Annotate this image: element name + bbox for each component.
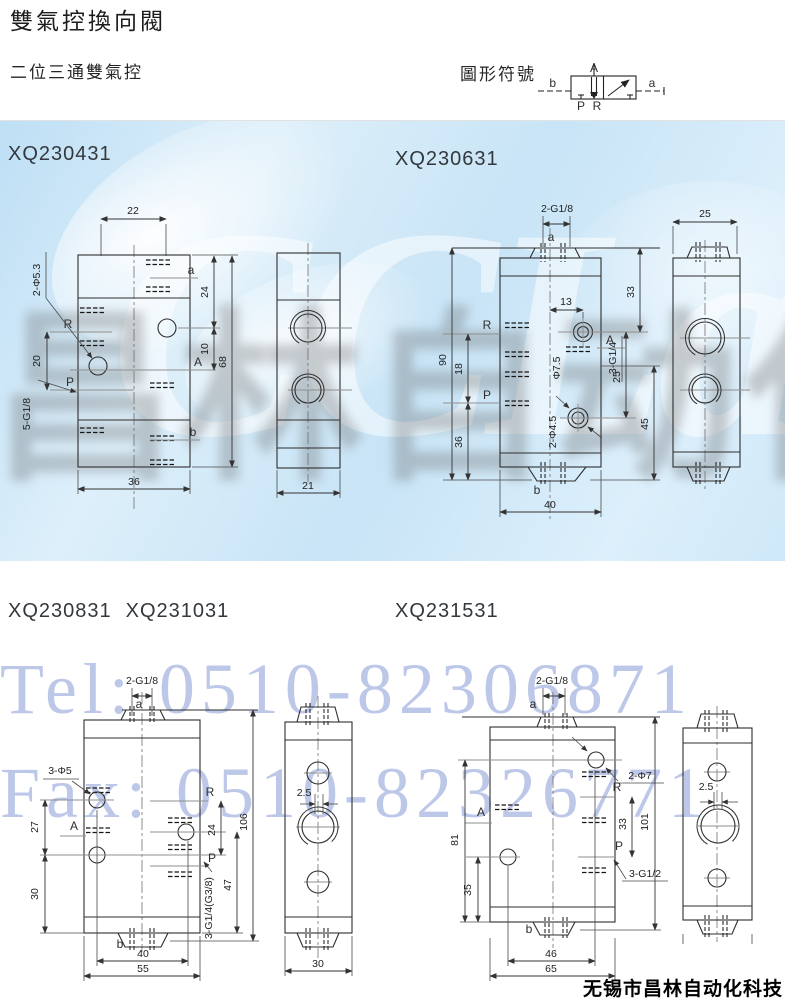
dim-13: 13 [560,296,572,308]
note-port-thread: 5-G1/8 [21,398,33,430]
port-P-label: P [208,851,216,865]
port-R-label: R [206,785,215,799]
symbol-port-b: b [549,76,556,90]
footer-company-name: 无锡市昌林自动化科技 [583,974,783,1000]
note-mount-holes: 3-Φ5 [48,765,72,777]
xq231531-front-drawing: 2-G1/8 a 2-Φ7 R A 81 35 P [450,670,670,995]
dim-width-bottom: 36 [128,476,140,488]
dim-width-top: 22 [127,205,139,217]
dim-81: 81 [449,834,461,846]
dim-45: 45 [639,418,651,430]
mount-hole [158,319,176,337]
section-subtitle: 二位三通雙氣控 [10,58,143,83]
dim-depth: 21 [302,480,314,492]
dim-106: 106 [238,813,250,831]
symbol-port-a: a [649,76,656,90]
model-label-xq230831: XQ230831 [8,600,112,622]
model-label-xq230831-xq231031: XQ230831XQ231031 [8,600,243,623]
dim-24: 24 [206,824,218,836]
xq230831-side-drawing: 2.5 30 [272,688,365,990]
dim-101: 101 [639,813,651,831]
dim-36: 36 [453,436,465,448]
dim-width-bottom: 40 [544,499,556,511]
page-title: 雙氣控換向閥 [10,2,166,36]
note-mount-holes: 2-Φ5.3 [31,264,43,296]
note-top-ports: 2-G1/8 [536,675,568,687]
dim-24: 24 [199,286,211,298]
port-R-label: R [613,780,622,794]
dim-33: 33 [617,818,629,830]
symbol-section-label: 圖形符號 [460,60,536,85]
dim-55: 55 [137,963,149,975]
port-A-label: A [194,355,202,369]
dim-30: 30 [29,888,41,900]
port-a-label: a [188,263,195,277]
dim-25: 25 [611,371,623,383]
note-thread: 3-G1/4 [607,342,619,374]
dim-depth: 30 [312,958,324,970]
note-cbore: Φ7.5 [551,356,563,379]
port-a-label: a [548,230,555,244]
port-P-label: P [615,839,623,853]
port-A-label: A [477,805,485,819]
catalog-page: 雙氣控換向閥 二位三通雙氣控 圖形符號 b A a P R CCLair 昌林自 [0,0,785,1000]
dim-20: 20 [31,355,43,367]
dim-depth: 25 [699,208,711,220]
port-b-label: b [526,922,533,936]
xq230431-front-drawing: 22 a R A P b 2-Φ5.3 20 5-G1/8 24 10 [20,190,250,515]
dim-68: 68 [217,356,229,368]
dim-46: 46 [545,948,557,960]
model-label-xq230631: XQ230631 [395,148,499,171]
xq230631-side-drawing: 25 [660,200,765,495]
dim-27: 27 [29,821,41,833]
dim-offset: 2.5 [699,781,714,793]
port-R-label: R [483,318,492,332]
model-label-xq230431: XQ230431 [8,143,112,166]
note-top-ports: 2-G1/8 [541,203,573,215]
symbol-port-P: P [577,99,585,113]
note-mount-holes: 2-Φ4.5 [547,416,559,448]
dim-offset: 2.5 [297,787,312,799]
port-b-label: b [117,937,124,951]
port-P-label: P [483,388,491,402]
note-thread: 3-G1/2 [629,868,661,880]
port-R-label: R [64,317,73,331]
dim-18: 18 [453,363,465,375]
dim-35: 35 [462,884,474,896]
mount-hole [89,357,107,375]
xq230831-front-drawing: 2-G1/8 a 3-Φ5 27 30 A R [25,665,270,995]
dim-65: 65 [545,963,557,975]
dim-10: 10 [199,343,211,355]
note-top-ports: 2-G1/8 [126,675,158,687]
port-a-label: a [530,697,537,711]
dim-40: 40 [137,948,149,960]
note-mount-holes: 2-Φ7 [628,770,652,782]
model-label-xq231531: XQ231531 [395,600,499,623]
port-A-label: A [70,819,78,833]
port-P-label: P [66,375,74,389]
xq230431-side-drawing: 21 [260,228,365,513]
note-thread: 3-G1/4(G3/8) [203,877,215,939]
dim-47: 47 [222,879,234,891]
dim-90: 90 [437,354,449,366]
dim-33: 33 [625,286,637,298]
xq231531-side-drawing: 2.5 [670,700,765,945]
symbol-port-R: R [593,99,602,113]
pneumatic-symbol-diagram: b A a P R [530,60,685,115]
xq230631-front-drawing: 2-G1/8 a 13 R A 3-G1/4 33 25 [430,195,670,525]
port-b-label: b [534,483,541,497]
model-label-xq231031: XQ231031 [126,600,230,622]
port-b-label: b [190,425,197,439]
